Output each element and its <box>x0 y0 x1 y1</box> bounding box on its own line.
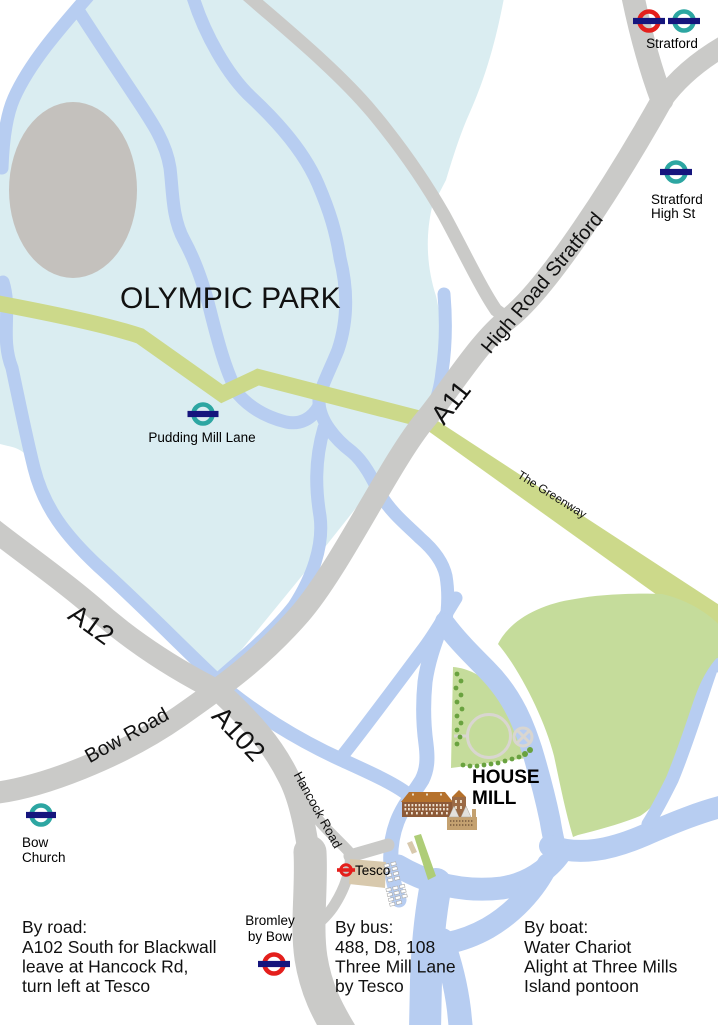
svg-text:By boat:: By boat: <box>524 917 588 937</box>
svg-text:Stratford: Stratford <box>651 192 703 207</box>
svg-text:Stratford: Stratford <box>646 36 698 51</box>
svg-text:Bromley: Bromley <box>245 913 295 928</box>
svg-text:MILL: MILL <box>472 788 517 809</box>
svg-text:Bow: Bow <box>22 835 49 850</box>
svg-text:488, D8, 108: 488, D8, 108 <box>335 937 435 957</box>
svg-text:Island pontoon: Island pontoon <box>524 976 639 996</box>
svg-text:HOUSE: HOUSE <box>472 767 540 788</box>
svg-text:By road:: By road: <box>22 917 87 937</box>
svg-text:A102 South for Blackwall: A102 South for Blackwall <box>22 937 217 957</box>
svg-text:by Bow: by Bow <box>248 929 293 944</box>
svg-text:OLYMPIC PARK: OLYMPIC PARK <box>120 282 341 315</box>
svg-text:by Tesco: by Tesco <box>335 976 404 996</box>
svg-text:Tesco: Tesco <box>355 863 390 878</box>
svg-text:Three Mill Lane: Three Mill Lane <box>335 957 456 977</box>
svg-text:Water Chariot: Water Chariot <box>524 937 631 957</box>
svg-text:turn left at Tesco: turn left at Tesco <box>22 976 150 996</box>
svg-text:leave at Hancock Rd,: leave at Hancock Rd, <box>22 957 188 977</box>
svg-text:High St: High St <box>651 206 696 221</box>
svg-text:Church: Church <box>22 850 66 865</box>
svg-text:Pudding Mill Lane: Pudding Mill Lane <box>148 430 255 445</box>
svg-text:Alight at Three Mills: Alight at Three Mills <box>524 957 678 977</box>
svg-text:By bus:: By bus: <box>335 917 393 937</box>
